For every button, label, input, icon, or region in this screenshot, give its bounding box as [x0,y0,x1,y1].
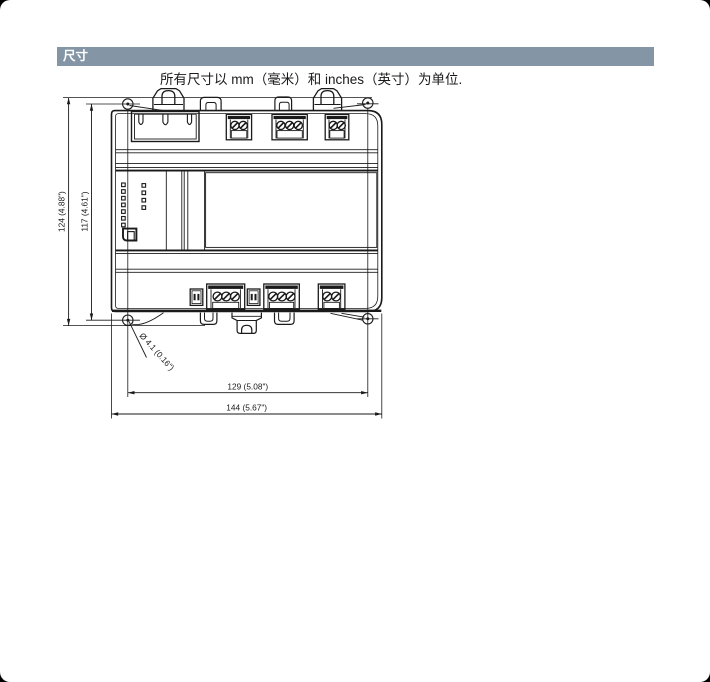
svg-text:129 (5.08"): 129 (5.08") [227,381,268,391]
svg-text:117 (4.61"): 117 (4.61") [79,191,89,231]
svg-text:144 (5.67"): 144 (5.67") [226,403,267,413]
svg-text:124 (4.88"): 124 (4.88") [57,191,67,232]
